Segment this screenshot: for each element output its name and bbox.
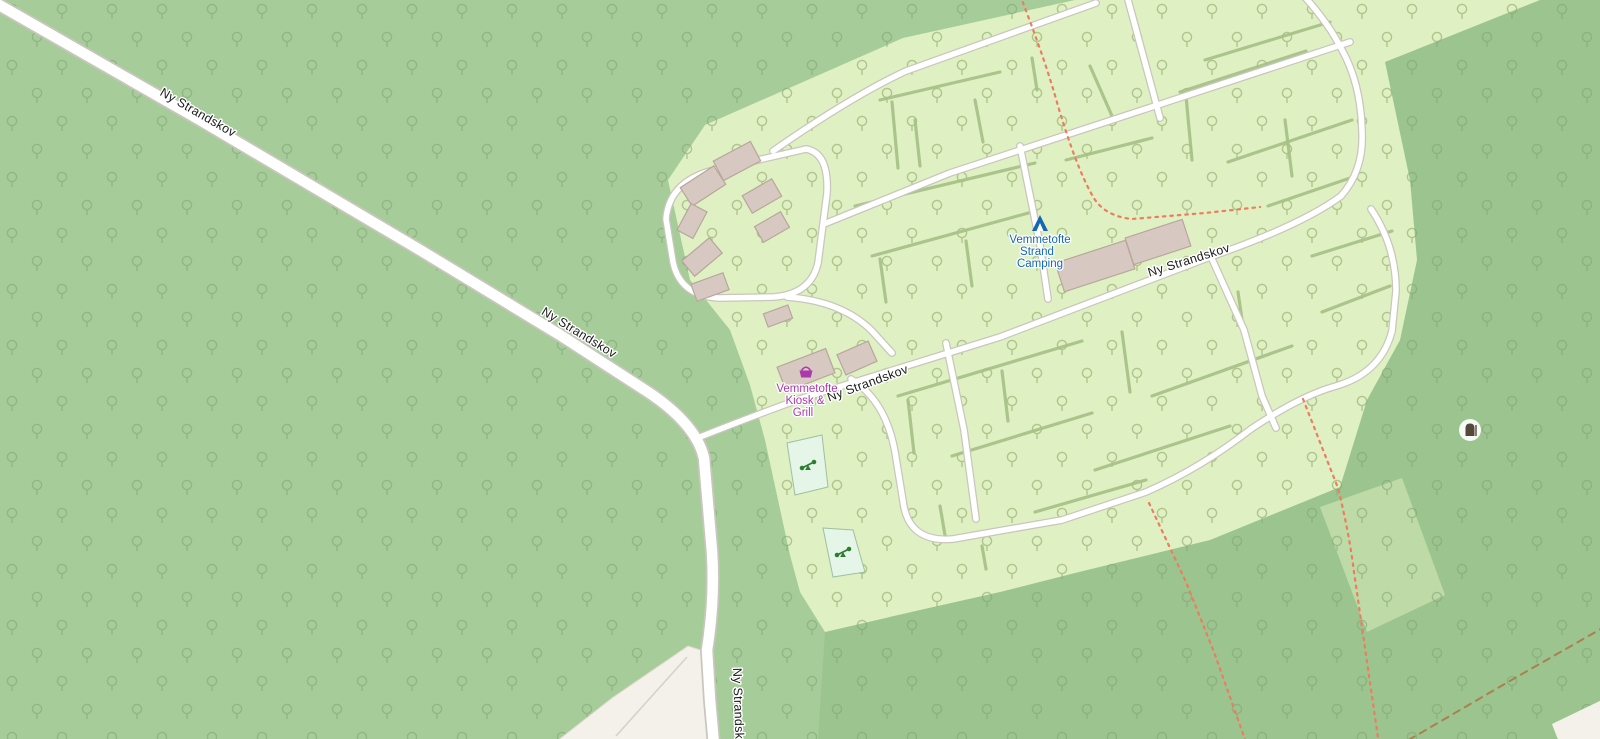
- kiosk-label-line: Vemmetofte: [776, 383, 837, 395]
- campsite-label-line: Camping: [1017, 258, 1063, 270]
- campsite-label-line: Strand: [1020, 246, 1054, 258]
- hunting-stand-icon: [1459, 419, 1481, 441]
- road-label-south: Ny Strandskov: [730, 668, 747, 739]
- campsite-label-line: Vemmetofte: [1009, 234, 1070, 246]
- map-canvas[interactable]: Ny Strandskov Ny Strandskov Ny Strandsko…: [0, 0, 1600, 739]
- kiosk-label-line: Kiosk &: [786, 395, 825, 407]
- kiosk-label-line: Grill: [793, 407, 813, 419]
- map-svg: Ny Strandskov Ny Strandskov Ny Strandsko…: [0, 0, 1600, 739]
